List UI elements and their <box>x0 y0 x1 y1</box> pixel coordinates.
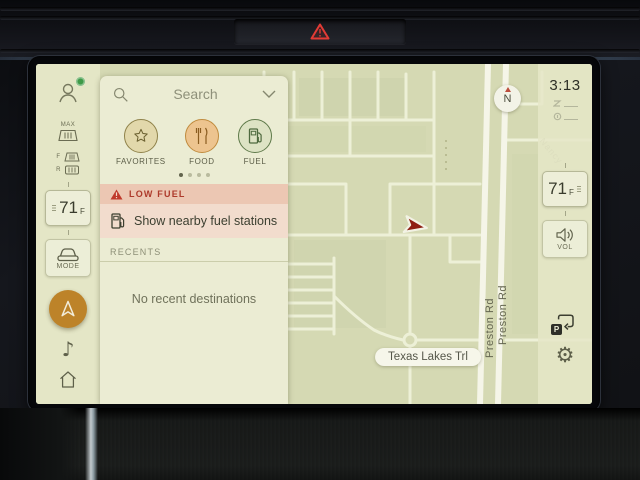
star-icon <box>132 127 150 145</box>
status-indicators <box>553 99 578 121</box>
clock: 3:13 <box>549 77 580 94</box>
infotainment-screen: N Texas Lakes Trl Preston Rd Preston Rd … <box>36 64 592 404</box>
media-button[interactable]: ♪ <box>62 339 75 361</box>
seat-climate-icon <box>51 204 57 212</box>
street-label-vertical: Preston Rd <box>497 285 509 345</box>
fork-knife-icon <box>194 127 210 145</box>
page-dot <box>188 173 192 177</box>
page-dot <box>206 173 210 177</box>
parking-letter: P <box>551 324 562 335</box>
search-input[interactable]: Search <box>100 76 288 112</box>
slider-tick <box>565 163 566 168</box>
signal-icon <box>553 99 562 108</box>
profile-button[interactable] <box>55 80 81 109</box>
car-mode-icon <box>56 247 80 262</box>
rear-defrost-icon <box>64 165 80 175</box>
front-defrost-icon <box>64 152 80 162</box>
left-control-rail: MAX F R <box>36 64 100 404</box>
front-rear-defrost-button[interactable]: F R <box>56 152 80 175</box>
passenger-temperature-control[interactable]: 71 F <box>542 171 588 207</box>
dashboard-trim <box>0 408 640 480</box>
music-note-icon: ♪ <box>62 337 75 361</box>
lock-icon <box>553 112 562 121</box>
category-fuel[interactable]: FUEL <box>238 119 272 166</box>
speaker-icon <box>555 227 575 243</box>
recents-empty-message: No recent destinations <box>100 292 288 306</box>
slider-tick <box>68 230 69 235</box>
category-shortcuts: FAVORITES FOOD <box>100 112 288 170</box>
max-defrost-button[interactable]: MAX <box>58 122 78 142</box>
compass-north-tick <box>505 87 511 92</box>
windshield-defrost-icon <box>58 129 78 142</box>
home-icon <box>58 370 78 389</box>
notification-badge <box>76 77 85 86</box>
page-dot <box>179 173 183 177</box>
navigation-search-panel: Search FAVORITES <box>100 76 288 404</box>
low-fuel-alert-header: LOW FUEL <box>100 184 288 204</box>
fuel-station-icon <box>110 212 126 230</box>
slider-tick <box>68 182 69 187</box>
vent-slat <box>0 7 640 11</box>
dashboard-top <box>0 0 640 60</box>
right-control-rail: 3:13 71 F <box>538 64 592 404</box>
hazard-warning-icon <box>310 23 330 40</box>
trim-shadow <box>0 408 80 480</box>
search-icon <box>112 86 129 103</box>
chevron-down-icon[interactable] <box>262 90 276 98</box>
search-placeholder: Search <box>129 86 262 102</box>
gear-icon: ⚙ <box>556 343 575 367</box>
fuel-pump-icon <box>248 127 263 145</box>
navigation-arrow-icon <box>58 299 78 319</box>
street-name-pill: Texas Lakes Trl <box>375 348 481 366</box>
warning-triangle-icon <box>110 189 123 200</box>
page-indicator <box>100 170 288 184</box>
recents-section-header: RECENTS <box>100 238 288 262</box>
compass-button[interactable]: N <box>494 85 521 112</box>
page-dot <box>197 173 201 177</box>
mode-button[interactable]: MODE <box>45 239 91 277</box>
show-fuel-stations-button[interactable]: Show nearby fuel stations <box>100 204 288 238</box>
trim-reflection <box>85 408 98 480</box>
slider-tick <box>565 211 566 216</box>
compass-label: N <box>504 93 512 105</box>
infotainment-screen-bezel: N Texas Lakes Trl Preston Rd Preston Rd … <box>28 56 600 412</box>
seat-climate-icon <box>576 185 582 193</box>
settings-button[interactable]: ⚙ <box>556 344 575 368</box>
category-food[interactable]: FOOD <box>185 119 219 166</box>
parking-camera-button[interactable]: P <box>554 314 576 332</box>
home-button[interactable] <box>58 370 78 394</box>
vent-slat <box>0 49 640 53</box>
hazard-button[interactable] <box>234 19 406 44</box>
volume-button[interactable]: VOL <box>542 220 588 258</box>
street-label-vertical: Preston Rd <box>484 298 496 358</box>
category-favorites[interactable]: FAVORITES <box>116 119 166 166</box>
driver-temperature-control[interactable]: 71 F <box>45 190 91 226</box>
navigation-app-button[interactable] <box>49 290 87 328</box>
